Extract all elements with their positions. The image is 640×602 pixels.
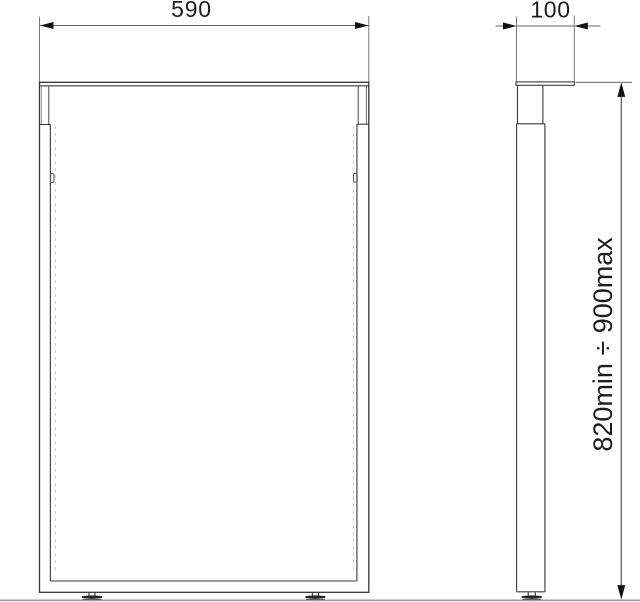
svg-text:820min ÷ 900max: 820min ÷ 900max bbox=[588, 237, 618, 452]
svg-text:100: 100 bbox=[530, 0, 570, 23]
svg-text:590: 590 bbox=[171, 0, 212, 22]
